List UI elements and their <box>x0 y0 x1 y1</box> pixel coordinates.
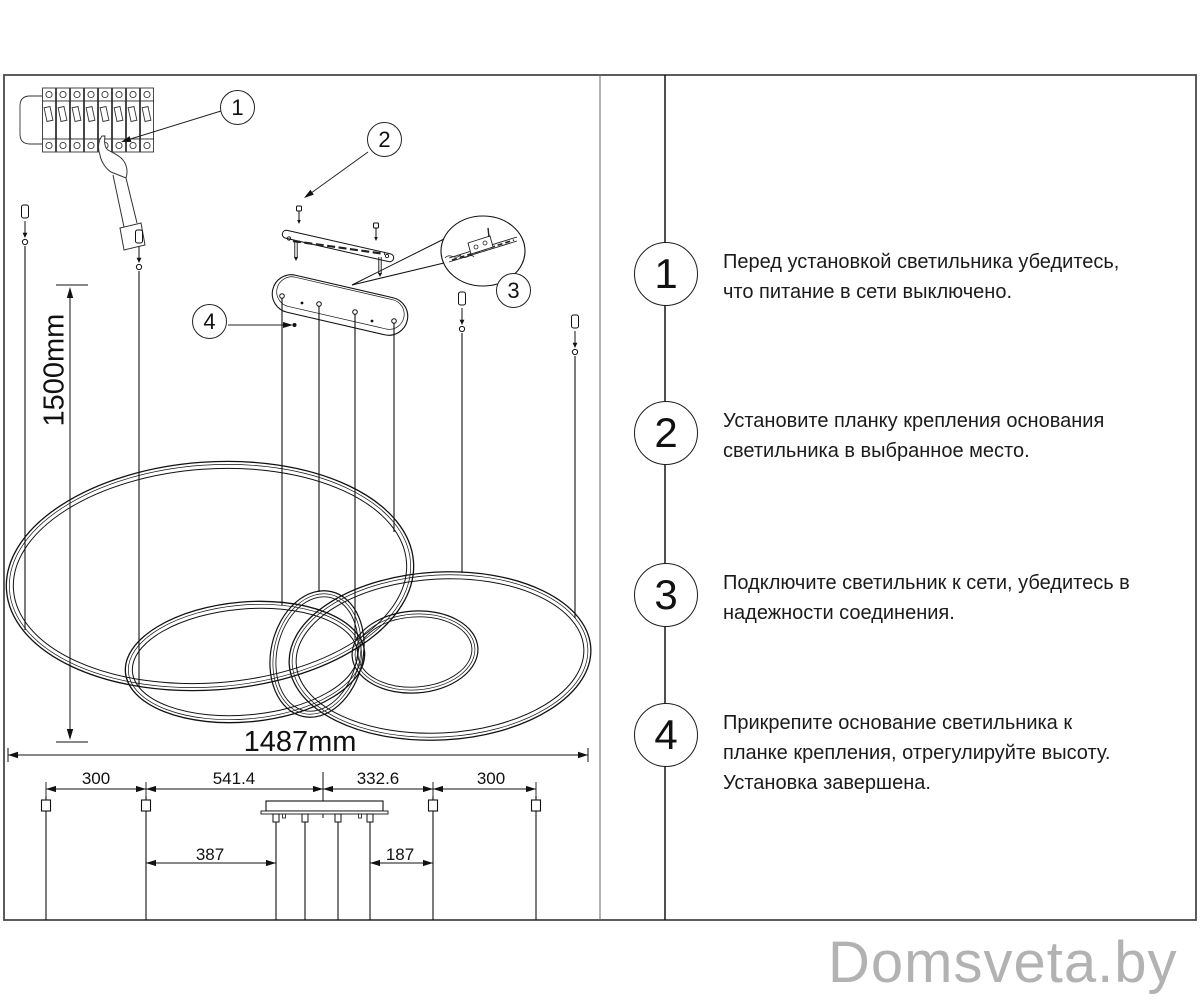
leader-4 <box>228 322 297 328</box>
step-1-text: Перед установкой светильника убедитесь,ч… <box>723 247 1119 307</box>
bottom-view <box>42 772 541 920</box>
step-2-circle: 2 <box>634 401 698 465</box>
light-rings <box>0 448 595 748</box>
ring-small <box>349 607 480 698</box>
callout-4: 4 <box>192 304 227 339</box>
ceiling-anchor <box>572 315 579 355</box>
step-3-circle: 3 <box>634 563 698 627</box>
step-3-text: Подключите светильник к сети, убедитесь … <box>723 568 1130 628</box>
dimension-label-541: 541.4 <box>204 769 264 789</box>
step-4-circle: 4 <box>634 703 698 767</box>
step-4-number: 4 <box>654 711 677 759</box>
callout-2-label: 2 <box>378 127 390 153</box>
step-text-line: надежности соединения. <box>723 598 1130 628</box>
step-text-line: что питание в сети выключено. <box>723 277 1119 307</box>
callout-4-label: 4 <box>203 309 215 335</box>
watermark: Domsveta.by <box>828 929 1177 996</box>
dimension-label-1500mm: 1500mm <box>39 337 72 427</box>
callout-2: 2 <box>367 122 402 157</box>
step-text-line: Установка завершена. <box>723 768 1110 798</box>
step-2-text: Установите планку крепления основаниясве… <box>723 406 1104 466</box>
step-1-circle: 1 <box>634 242 698 306</box>
step-text-line: Перед установкой светильника убедитесь, <box>723 247 1119 277</box>
dimension-label-300-right: 300 <box>461 769 521 789</box>
ceiling-anchor <box>22 205 29 245</box>
dimension-label-300-left: 300 <box>66 769 126 789</box>
step-text-line: Подключите светильник к сети, убедитесь … <box>723 568 1130 598</box>
step-text-line: светильника в выбранное место. <box>723 436 1104 466</box>
dimension-label-187: 187 <box>370 845 430 865</box>
step-3-number: 3 <box>654 571 677 619</box>
ceiling-anchor <box>136 230 143 270</box>
callout-3: 3 <box>496 273 531 308</box>
step-text-line: Прикрепите основание светильника к <box>723 708 1110 738</box>
mounting-bracket <box>282 206 395 277</box>
step-text-line: Установите планку крепления основания <box>723 406 1104 436</box>
step-2-number: 2 <box>654 409 677 457</box>
callout-3-label: 3 <box>507 278 519 304</box>
step-text-line: планке крепления, отрегулируйте высоту. <box>723 738 1110 768</box>
dimension-label-387: 387 <box>180 845 240 865</box>
dimension-label-332: 332.6 <box>348 769 408 789</box>
breaker-panel-sketch <box>20 88 154 152</box>
callout-1: 1 <box>220 90 255 125</box>
leader-2 <box>304 152 368 198</box>
callout-1-label: 1 <box>231 95 243 121</box>
dimension-label-1487mm: 1487mm <box>200 726 400 759</box>
canopy-side-view <box>268 271 411 339</box>
ceiling-anchor <box>459 292 466 332</box>
step-4-text: Прикрепите основание светильника кпланке… <box>723 708 1110 798</box>
step-1-number: 1 <box>654 250 677 298</box>
